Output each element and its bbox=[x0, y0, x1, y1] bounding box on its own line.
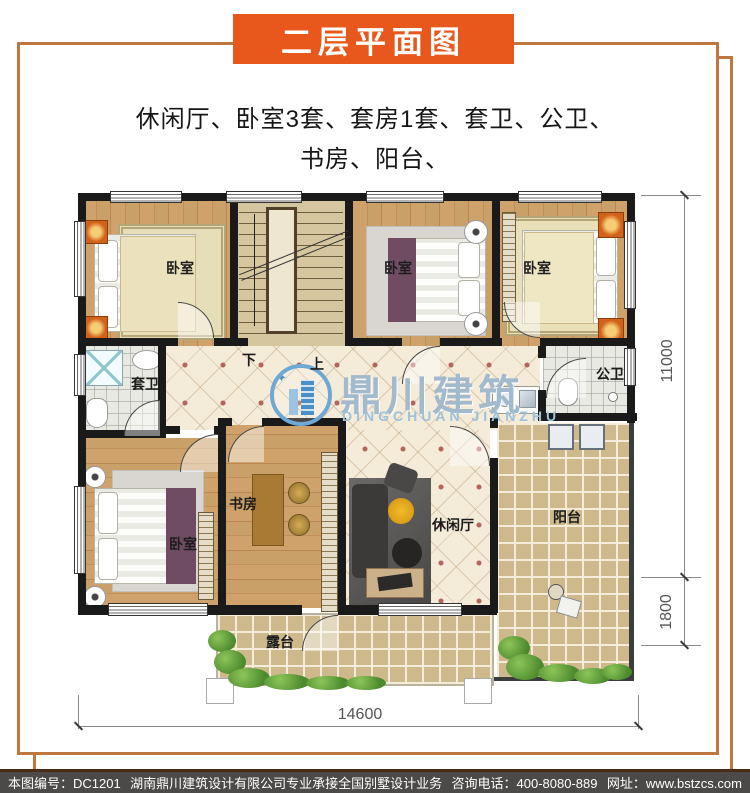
window bbox=[378, 603, 462, 616]
chair bbox=[288, 482, 310, 504]
room-label-bedroom: 卧室 bbox=[158, 258, 202, 278]
balcony-parapet bbox=[629, 423, 634, 681]
window bbox=[366, 191, 444, 203]
title-banner: 二层平面图 bbox=[233, 14, 514, 64]
window bbox=[74, 354, 86, 396]
pillow bbox=[98, 240, 118, 282]
pillow bbox=[458, 280, 480, 316]
toilet bbox=[86, 398, 108, 428]
shower-head bbox=[608, 392, 618, 402]
stair-label-up: 上 bbox=[308, 354, 326, 374]
ceiling-light bbox=[84, 466, 106, 488]
pillow bbox=[596, 280, 616, 320]
nightstand bbox=[84, 316, 108, 340]
pillow bbox=[596, 236, 616, 276]
plants bbox=[602, 664, 632, 680]
terrace-pillar bbox=[464, 678, 492, 704]
watermark-name-en: DINGCHUAN JIANZHU bbox=[342, 408, 560, 424]
room-summary-line2: 书房、阳台、 bbox=[60, 140, 690, 180]
wardrobe bbox=[198, 512, 214, 600]
logo-sparkle: ✦ bbox=[276, 370, 287, 386]
footer-drawing-no: 本图编号：DC1201 bbox=[8, 773, 121, 792]
wall bbox=[78, 338, 178, 346]
dim-value-width: 14600 bbox=[300, 706, 420, 724]
room-label-terrace: 露台 bbox=[258, 632, 302, 652]
window bbox=[108, 603, 208, 616]
side-table bbox=[392, 538, 422, 568]
room-label-bedroom: 卧室 bbox=[376, 258, 420, 278]
footer-phone: 咨询电话：400-8080-889 bbox=[452, 773, 598, 792]
blanket bbox=[388, 238, 416, 322]
room-label-bedroom: 卧室 bbox=[161, 534, 205, 554]
stair-label-down: 下 bbox=[240, 350, 258, 370]
ceiling-light bbox=[464, 312, 488, 336]
wall bbox=[230, 193, 238, 346]
dim-extension-line bbox=[641, 645, 701, 646]
window bbox=[518, 191, 602, 203]
ceiling-light bbox=[464, 220, 488, 244]
wall bbox=[540, 338, 635, 346]
dim-value-balcony-height: 1800 bbox=[658, 587, 676, 637]
dim-extension-line bbox=[641, 195, 701, 196]
plants bbox=[264, 674, 310, 690]
wall bbox=[345, 193, 353, 346]
footer-bar: 本图编号：DC1201 湖南鼎川建筑设计有限公司专业承接全国别墅设计业务 咨询电… bbox=[0, 769, 750, 793]
room-label-study: 书房 bbox=[221, 494, 265, 514]
room-summary: 休闲厅、卧室3套、套房1套、套卫、公卫、 书房、阳台、 bbox=[60, 100, 690, 180]
window bbox=[74, 221, 86, 297]
wall bbox=[492, 193, 500, 346]
window bbox=[226, 191, 302, 203]
pillow bbox=[98, 538, 118, 580]
nightstand bbox=[598, 212, 624, 238]
plants bbox=[208, 630, 236, 652]
floorplan-page: { "page": { "banner_title": "二层平面图", "su… bbox=[0, 0, 750, 793]
pillow bbox=[98, 492, 118, 534]
plants bbox=[306, 676, 350, 690]
page-title: 二层平面图 bbox=[281, 17, 466, 62]
wall bbox=[338, 418, 346, 615]
dim-extension-line bbox=[641, 577, 701, 578]
room-label-leisure-hall: 休闲厅 bbox=[420, 515, 486, 535]
shower bbox=[85, 350, 123, 386]
window bbox=[110, 191, 182, 203]
chair bbox=[288, 514, 310, 536]
coffee-table bbox=[388, 498, 414, 524]
logo-building-bar bbox=[301, 380, 314, 415]
dim-value-main-height: 11000 bbox=[659, 331, 677, 391]
pillow bbox=[458, 242, 480, 278]
plants bbox=[346, 676, 386, 690]
room-summary-line1: 休闲厅、卧室3套、套房1套、套卫、公卫、 bbox=[60, 100, 690, 140]
room-label-balcony: 阳台 bbox=[545, 507, 589, 527]
wall bbox=[345, 338, 402, 346]
frame-offset-left-leg bbox=[33, 755, 36, 769]
frame-offset-right bbox=[730, 56, 733, 769]
stair-railing bbox=[266, 207, 297, 334]
room-label-public-bath: 公卫 bbox=[586, 364, 634, 384]
bookshelf bbox=[321, 452, 338, 612]
nightstand bbox=[84, 220, 108, 244]
wall bbox=[218, 426, 226, 615]
footer-company: 湖南鼎川建筑设计有限公司专业承接全国别墅设计业务 bbox=[130, 773, 442, 792]
dim-line-bottom bbox=[78, 726, 639, 727]
window bbox=[74, 486, 86, 574]
wall bbox=[218, 418, 232, 426]
washing-machine bbox=[579, 424, 605, 450]
footer-website: 网址：www.bstzcs.com bbox=[607, 773, 742, 792]
room-label-bedroom: 卧室 bbox=[515, 258, 559, 278]
logo-building-bar bbox=[289, 389, 298, 415]
room-label-ensuite-bath: 套卫 bbox=[121, 374, 169, 394]
plants bbox=[228, 668, 270, 688]
washing-machine bbox=[548, 424, 574, 450]
wall bbox=[538, 346, 546, 358]
sofa bbox=[352, 484, 388, 578]
window bbox=[624, 221, 636, 309]
wall bbox=[490, 458, 498, 613]
wall bbox=[166, 426, 180, 434]
